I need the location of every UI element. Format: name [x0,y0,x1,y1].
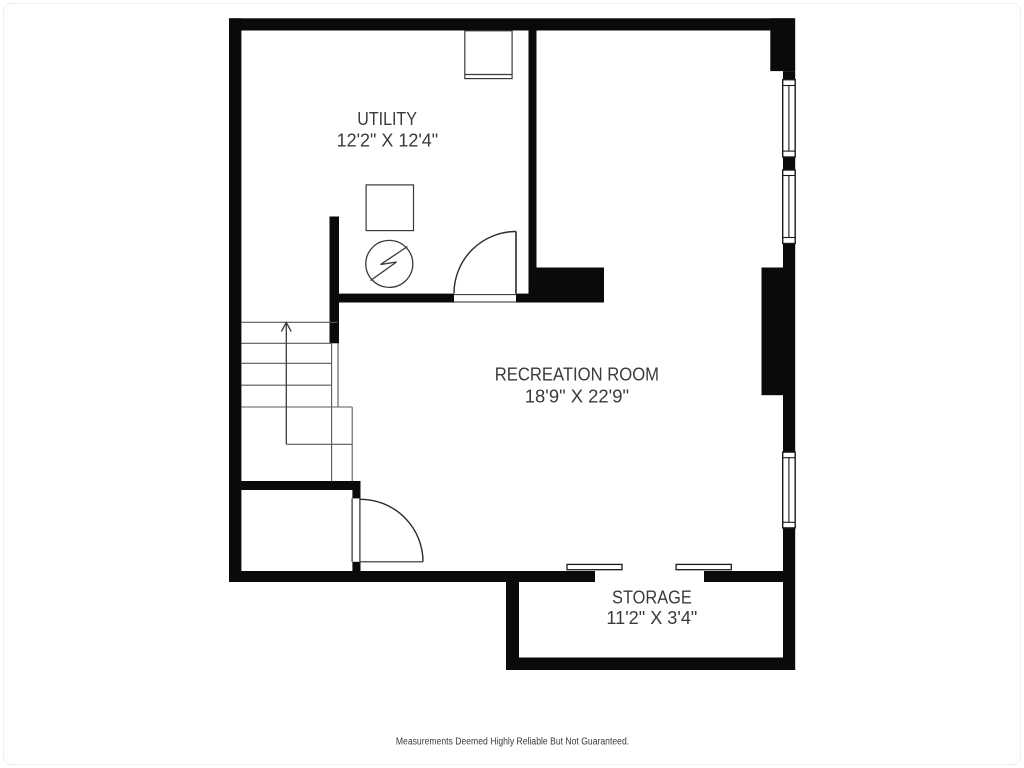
svg-text:11'2" X 3'4": 11'2" X 3'4" [606,608,697,628]
svg-text:UTILITY: UTILITY [357,109,417,129]
svg-text:STORAGE: STORAGE [612,588,692,608]
svg-text:18'9" X 22'9": 18'9" X 22'9" [525,386,629,406]
svg-text:Measurements Deemed Highly Rel: Measurements Deemed Highly Reliable But … [396,736,629,747]
svg-text:RECREATION ROOM: RECREATION ROOM [495,364,659,384]
svg-text:12'2" X 12'4": 12'2" X 12'4" [337,131,439,151]
